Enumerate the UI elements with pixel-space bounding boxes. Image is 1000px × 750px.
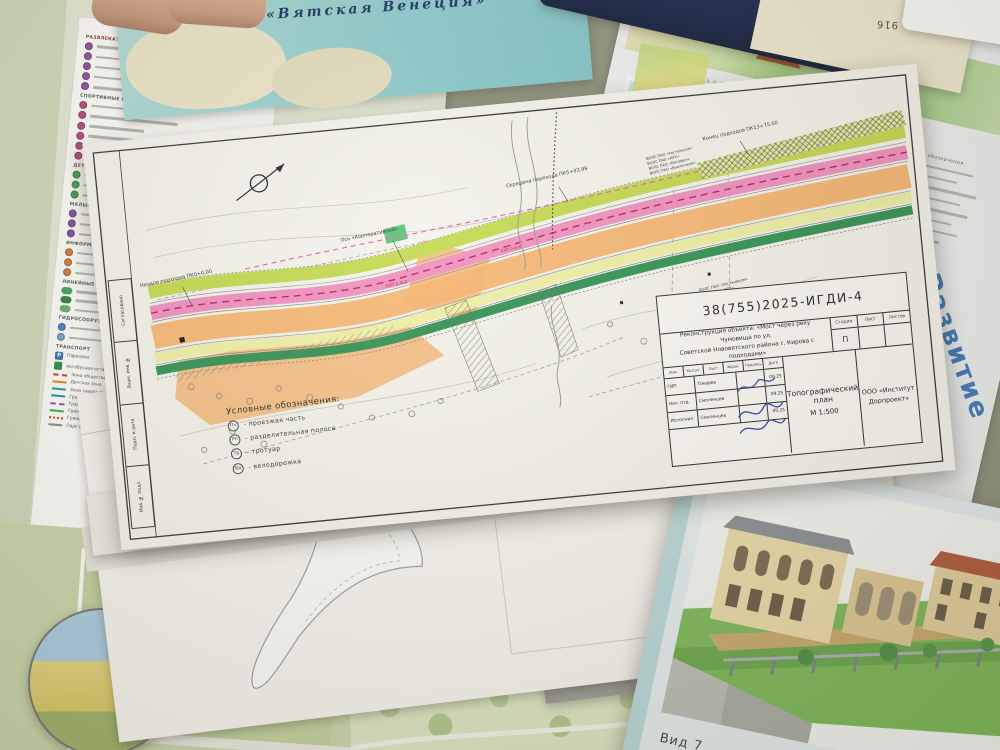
side-stamp-label: Инв. № подл. xyxy=(136,480,144,512)
boundary-line-icon xyxy=(53,373,67,376)
side-stamp-label: Взам. инв. № xyxy=(124,357,132,389)
boundary-line-icon xyxy=(50,402,64,405)
dot-icon xyxy=(63,268,72,277)
dot-icon xyxy=(67,219,76,228)
bus-stop-icon xyxy=(54,361,63,370)
boundary-line-icon xyxy=(49,416,63,419)
dot-icon xyxy=(85,42,94,51)
legend-code: Рп xyxy=(229,434,241,446)
dot-icon xyxy=(84,52,93,61)
dot-icon xyxy=(81,82,90,91)
dot-icon xyxy=(70,190,79,199)
stage-value: П xyxy=(832,328,861,351)
side-stamp-label: Согласовано xyxy=(119,295,127,326)
annotation-end: Конец подходов ПК13+75.00 xyxy=(702,120,778,143)
eco-park-title: «Вятская Венеция» xyxy=(266,0,488,23)
parking-icon: P xyxy=(55,351,64,360)
rendering-caption: Вид 7 xyxy=(658,731,704,750)
dot-icon xyxy=(64,258,73,267)
boundary-line-icon xyxy=(51,395,65,398)
architectural-rendering xyxy=(661,462,1000,750)
paper-number: 916 xyxy=(876,18,899,31)
dot-icon xyxy=(77,121,86,130)
route-icon xyxy=(60,296,72,304)
legend-code: Вд xyxy=(232,462,244,474)
hydro-icon xyxy=(57,333,66,342)
side-stamp-label: Подп. и дата xyxy=(130,419,138,451)
legend-code: Пч xyxy=(227,420,239,432)
dot-icon xyxy=(78,111,87,120)
dot-icon xyxy=(74,151,83,160)
photo-of-drawings: Благоустройство УСЛОВНЫЕ ОБОЗНАЧЕНИЯ РАЗ… xyxy=(0,0,1000,750)
dot-icon xyxy=(79,101,88,110)
route-icon xyxy=(61,287,73,295)
hydro-icon xyxy=(57,323,66,332)
title-block: 38(755)2025-ИГДИ-4 Реконструкция объекта… xyxy=(656,272,923,467)
signatures-table: Изм. Кол.уч. Лист №док. Подпись Дата ГИП… xyxy=(664,357,793,464)
dot-icon xyxy=(66,229,75,238)
dot-icon xyxy=(76,131,85,140)
dot-icon xyxy=(82,72,91,81)
north-arrow-icon xyxy=(233,164,287,201)
dot-icon xyxy=(83,62,92,71)
dot-icon xyxy=(68,209,77,218)
rendering-graphics xyxy=(661,462,1000,750)
topographic-plan-sheet: Начало подходов ПК0+0.00 Ось «Кооператив… xyxy=(82,64,955,550)
boundary-line-icon xyxy=(52,387,66,390)
boundary-line-icon xyxy=(48,423,62,426)
company-cell: ООО «Институт Дорпроект» xyxy=(855,344,921,445)
dot-icon xyxy=(72,170,81,179)
route-icon xyxy=(59,305,71,313)
legend-code: Тр xyxy=(230,448,242,460)
dot-icon xyxy=(71,180,80,189)
boundary-line-icon xyxy=(53,380,67,383)
boundary-line-icon xyxy=(50,409,64,412)
dot-icon xyxy=(65,248,74,257)
ink-signatures xyxy=(732,369,788,443)
plan-type-cell: Топографический план М 1:500 xyxy=(783,350,864,453)
